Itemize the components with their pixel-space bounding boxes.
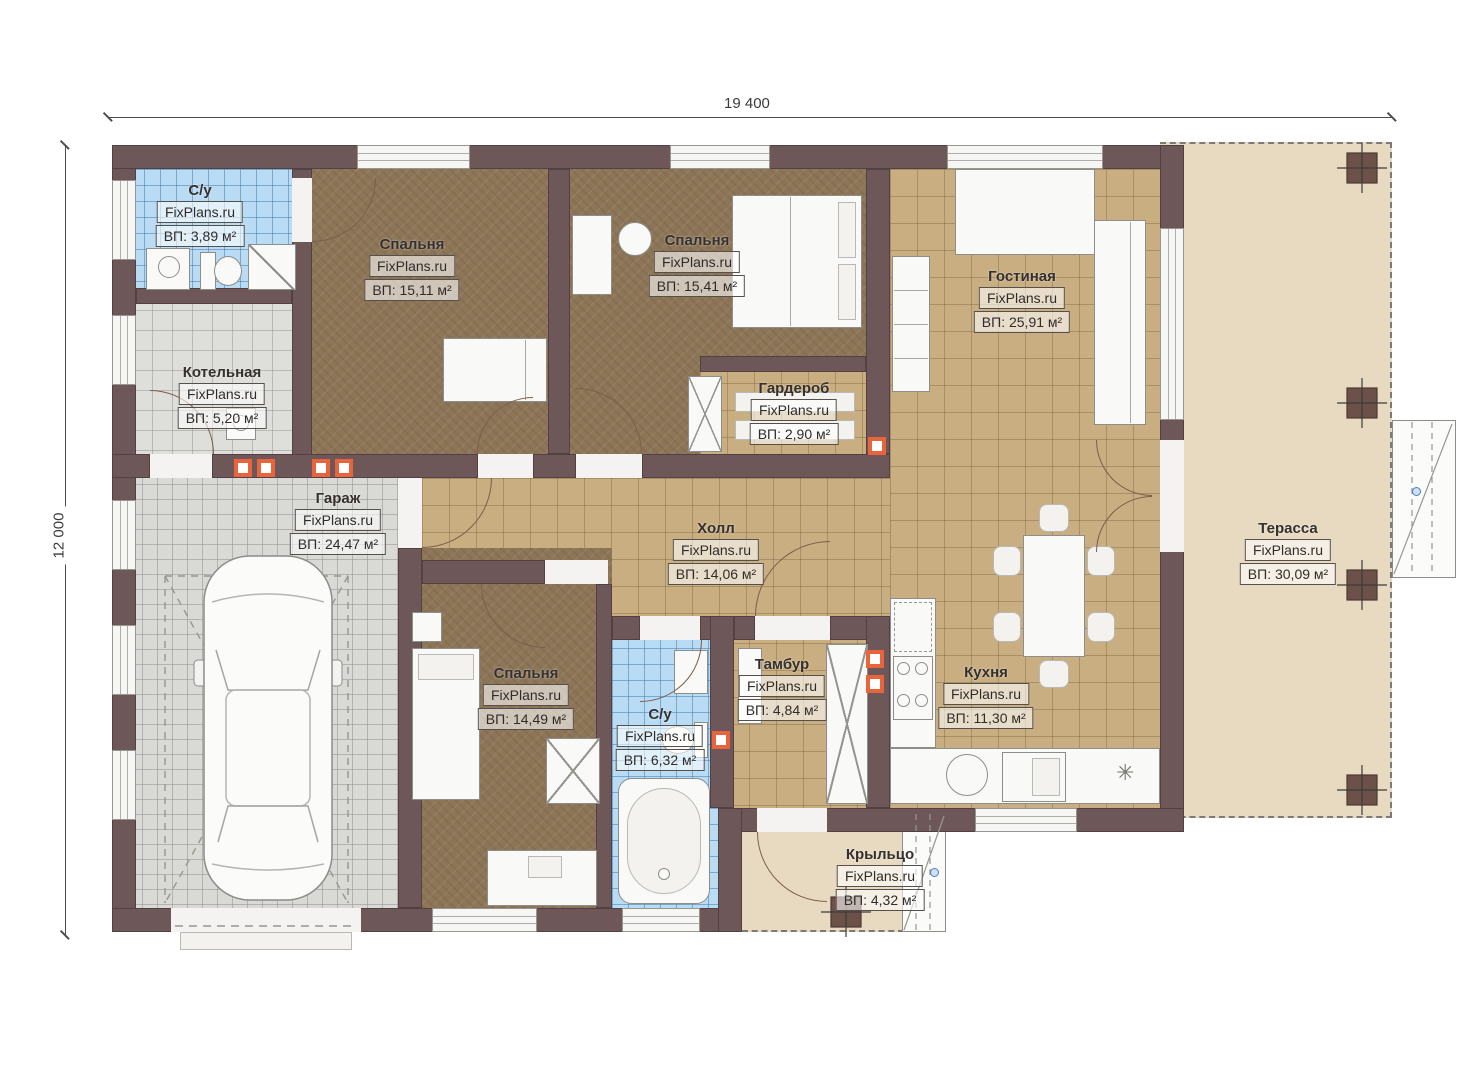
wall — [422, 560, 545, 584]
washing-machine-door — [158, 256, 180, 278]
watermark-box: FixPlans.ru — [751, 399, 837, 421]
room-name: Терасса — [1258, 520, 1317, 537]
garage-door-opening — [171, 908, 361, 932]
area-box: ВП: 25,91 м² — [974, 311, 1070, 333]
door-opening — [398, 478, 422, 548]
closet-cabinet — [688, 376, 722, 452]
window — [432, 908, 537, 932]
oven-door — [1032, 758, 1060, 796]
window — [670, 145, 770, 169]
door-opening — [478, 454, 533, 478]
room-label-wardrobe: Гардероб FixPlans.ru ВП: 2,90 м² — [750, 380, 839, 445]
wall — [533, 454, 576, 478]
wall — [700, 356, 866, 372]
shelf-line — [894, 290, 928, 291]
fridge-outline — [894, 602, 932, 652]
watermark-box: FixPlans.ru — [673, 539, 759, 561]
vent-icon — [234, 459, 252, 477]
door-opening — [292, 178, 312, 242]
chair — [993, 546, 1021, 576]
area-box: ВП: 11,30 м² — [938, 707, 1033, 729]
shelf-line — [894, 324, 928, 325]
room-name: С/у — [188, 182, 211, 199]
wall — [734, 616, 755, 640]
bed-pillow-line — [525, 340, 526, 400]
watermark-box: FixPlans.ru — [157, 201, 243, 223]
pillow — [418, 654, 474, 680]
window — [112, 750, 136, 820]
window — [975, 808, 1077, 832]
watermark-box: FixPlans.ru — [1245, 539, 1331, 561]
window — [112, 315, 136, 385]
door-opening — [150, 454, 212, 478]
desk-item — [528, 856, 562, 878]
door-opening — [1160, 440, 1184, 552]
room-name: Спальня — [665, 232, 730, 249]
room-label-terrace: Терасса FixPlans.ru ВП: 30,09 м² — [1240, 520, 1336, 585]
vent-icon — [868, 437, 886, 455]
window — [1160, 228, 1184, 420]
room-label-bedroom-2: Спальня FixPlans.ru ВП: 15,41 м² — [649, 232, 745, 297]
stove-burner — [897, 662, 910, 675]
area-box: ВП: 14,06 м² — [668, 563, 764, 585]
room-label-porch: Крыльцо FixPlans.ru ВП: 4,32 м² — [836, 846, 925, 911]
area-box: ВП: 4,84 м² — [738, 699, 827, 721]
room-name: Крыльцо — [846, 846, 914, 863]
chair — [618, 222, 652, 256]
chair — [993, 612, 1021, 642]
room-label-garage: Гараж FixPlans.ru ВП: 24,47 м² — [290, 490, 386, 555]
room-name: Гардероб — [759, 380, 830, 397]
area-box: ВП: 30,09 м² — [1240, 563, 1336, 585]
room-label-hall: Холл FixPlans.ru ВП: 14,06 м² — [668, 520, 764, 585]
floor-plan: 19 400 12 000 — [0, 0, 1474, 1080]
window — [112, 625, 136, 695]
dimension-line-top — [108, 117, 1392, 118]
watermark-box: FixPlans.ru — [837, 865, 923, 887]
room-name: Кухня — [964, 664, 1008, 681]
garage-apron — [180, 932, 352, 950]
room-name: Гараж — [316, 490, 361, 507]
dimension-height-label: 12 000 — [50, 507, 67, 565]
area-box: ВП: 4,32 м² — [836, 889, 925, 911]
window — [622, 908, 700, 932]
wall — [112, 454, 150, 478]
bathtub-drain — [658, 868, 670, 880]
watermark-box: FixPlans.ru — [483, 684, 569, 706]
room-floor-terrace — [1160, 142, 1392, 818]
wall — [718, 808, 742, 932]
door-opening — [755, 616, 830, 640]
room-name: Котельная — [183, 364, 262, 381]
door-opening — [640, 616, 700, 640]
pillow — [838, 202, 856, 258]
kitchen-sink — [946, 754, 988, 796]
window — [112, 180, 136, 260]
wall — [866, 169, 890, 454]
handle-dot — [1412, 487, 1421, 496]
blanket-line — [790, 197, 791, 326]
room-label-tambour: Тамбур FixPlans.ru ВП: 4,84 м² — [738, 656, 827, 721]
window-bay — [955, 169, 1095, 255]
shower — [248, 244, 296, 290]
shelf-line — [894, 358, 928, 359]
watermark-box: FixPlans.ru — [739, 675, 825, 697]
pillow — [838, 264, 856, 320]
area-box: ВП: 2,90 м² — [750, 423, 839, 445]
room-label-su-top: С/у FixPlans.ru ВП: 3,89 м² — [156, 182, 245, 247]
room-label-bedroom-3: Спальня FixPlans.ru ВП: 14,49 м² — [478, 665, 574, 730]
nightstand — [412, 612, 442, 642]
vent-icon — [866, 650, 884, 668]
room-label-kitchen: Кухня FixPlans.ru ВП: 11,30 м² — [938, 664, 1033, 729]
terrace-stairs — [1392, 420, 1456, 578]
area-box: ВП: 24,47 м² — [290, 533, 386, 555]
stove-burner — [897, 694, 910, 707]
room-name: Спальня — [380, 236, 445, 253]
wall — [548, 169, 570, 454]
hall-cabinet — [826, 644, 868, 804]
dining-table — [1023, 535, 1085, 657]
wall — [866, 616, 890, 808]
room-name: Спальня — [494, 665, 559, 682]
area-box: ВП: 15,41 м² — [649, 275, 745, 297]
window — [357, 145, 470, 169]
window — [112, 500, 136, 570]
room-name: Холл — [697, 520, 735, 537]
vent-icon — [335, 459, 353, 477]
watermark-box: FixPlans.ru — [295, 509, 381, 531]
watermark-box: FixPlans.ru — [979, 287, 1065, 309]
wall — [642, 454, 890, 478]
watermark-box: FixPlans.ru — [369, 255, 455, 277]
toilet — [214, 256, 242, 286]
area-box: ВП: 3,89 м² — [156, 225, 245, 247]
area-box: ВП: 5,20 м² — [178, 407, 267, 429]
handle-dot — [930, 868, 939, 877]
freezer-symbol: ✳ — [1116, 760, 1134, 786]
door-opening — [545, 560, 608, 584]
watermark-box: FixPlans.ru — [617, 725, 703, 747]
dimension-width-label: 19 400 — [718, 95, 776, 112]
area-box: ВП: 6,32 м² — [616, 749, 705, 771]
vent-icon — [866, 675, 884, 693]
watermark-box: FixPlans.ru — [179, 383, 265, 405]
sofa — [1094, 220, 1146, 425]
room-label-boiler: Котельная FixPlans.ru ВП: 5,20 м² — [178, 364, 267, 429]
vent-icon — [312, 459, 330, 477]
window — [947, 145, 1103, 169]
room-label-bedroom-1: Спальня FixPlans.ru ВП: 15,11 м² — [364, 236, 459, 301]
chair — [1087, 612, 1115, 642]
stove-burner — [915, 694, 928, 707]
closet-cabinet — [546, 738, 600, 804]
area-box: ВП: 15,11 м² — [364, 279, 459, 301]
room-label-living: Гостиная FixPlans.ru ВП: 25,91 м² — [974, 268, 1070, 333]
room-name: Тамбур — [755, 656, 809, 673]
chair — [1039, 660, 1069, 688]
door-opening — [757, 808, 827, 832]
vent-icon — [712, 731, 730, 749]
wall — [136, 288, 292, 304]
wall — [710, 616, 734, 808]
wall — [612, 616, 640, 640]
door-opening — [576, 454, 642, 478]
stove-burner — [915, 662, 928, 675]
watermark-box: FixPlans.ru — [654, 251, 740, 273]
bed — [443, 338, 547, 402]
sofa-back-line — [1130, 222, 1131, 423]
desk — [572, 215, 612, 295]
vent-icon — [257, 459, 275, 477]
room-name: Гостиная — [988, 268, 1056, 285]
room-label-su-bottom: С/у FixPlans.ru ВП: 6,32 м² — [616, 706, 705, 771]
chair — [1039, 504, 1069, 532]
room-name: С/у — [648, 706, 671, 723]
watermark-box: FixPlans.ru — [943, 683, 1029, 705]
area-box: ВП: 14,49 м² — [478, 708, 574, 730]
